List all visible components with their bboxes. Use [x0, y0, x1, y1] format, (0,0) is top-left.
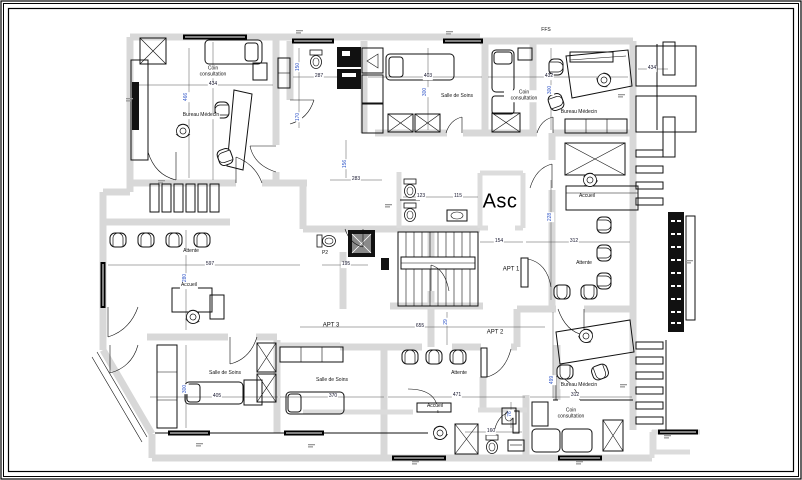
dimension-label: 466	[184, 92, 190, 102]
room-label-accueil-3: Accueil	[426, 404, 444, 410]
dimension-label: 471	[452, 393, 462, 399]
dimension-label: 405	[212, 394, 222, 400]
shower-box	[348, 230, 375, 257]
plan-linework	[0, 0, 802, 480]
dimension-label: 287	[314, 74, 324, 80]
dimension-label: 76	[508, 410, 514, 418]
dimension-label: 499	[550, 375, 556, 385]
dimension-label: 403	[423, 74, 433, 80]
label-apt-1: APT 1	[502, 267, 521, 274]
dimension-label: 170	[296, 112, 302, 122]
room-label-attente-3: Attente	[450, 371, 468, 377]
dimension-label: 370	[328, 394, 338, 400]
dimension-label: 150	[296, 62, 302, 72]
dimension-label: 154	[494, 239, 504, 245]
dimension-label: 29	[444, 318, 450, 326]
dimension-label: 280	[183, 273, 189, 283]
room-label-coin-consultation-3: Coin consultation	[551, 408, 591, 420]
room-label-salle-de-soins-3: Salle de Soins	[315, 378, 349, 384]
room-label-salle-de-soins-1: Salle de Soins	[440, 94, 474, 100]
dimension-label: 434	[208, 82, 218, 88]
label-apt-3: APT 3	[322, 323, 341, 330]
room-label-attente-2: Attente	[182, 249, 200, 255]
dimension-label: 160	[486, 429, 496, 435]
room-label-bureau-medecin-2: Bureau Médecin	[560, 110, 598, 116]
label-apt-2: APT 2	[486, 330, 505, 337]
dimension-label: 156	[343, 159, 349, 169]
room-label-bureau-medecin-3: Bureau Médecin	[560, 383, 598, 389]
dimension-label: 312	[570, 393, 580, 399]
dimension-label: 123	[416, 194, 426, 200]
room-label-elevator-asc: Asc	[482, 191, 519, 214]
room-label-salle-de-soins-2: Salle de Soins	[208, 371, 242, 377]
floor-plan-canvas: Coin consultation Bureau Médecin Salle d…	[0, 0, 802, 480]
room-label-accueil-2: Accueil	[180, 283, 198, 289]
dimension-label: 655	[415, 324, 425, 330]
dimension-label: 312	[569, 239, 579, 245]
room-label-attente-1: Attente	[575, 261, 593, 267]
dimension-label: 228	[548, 212, 554, 222]
label-ffs: FFS	[540, 28, 551, 34]
dimension-label: 115	[453, 194, 463, 200]
room-label-coin-consultation-1: Coin consultation	[193, 66, 233, 78]
dimension-label: 300	[183, 384, 189, 394]
room-label-accueil-1: Accueil	[578, 194, 596, 200]
dimension-label: 597	[205, 262, 215, 268]
room-label-coin-consultation-2: Coin consultation	[504, 90, 544, 102]
dimension-label: 283	[351, 177, 361, 183]
label-door-p2: P2	[321, 251, 329, 257]
dimension-label: 434	[647, 66, 657, 72]
dimension-label: 195	[341, 262, 351, 268]
dimension-label: 300	[548, 85, 554, 95]
dimension-label: 300	[423, 87, 429, 97]
room-label-bureau-medecin-1: Bureau Médecin	[182, 113, 220, 119]
dimension-label: 432	[544, 74, 554, 80]
